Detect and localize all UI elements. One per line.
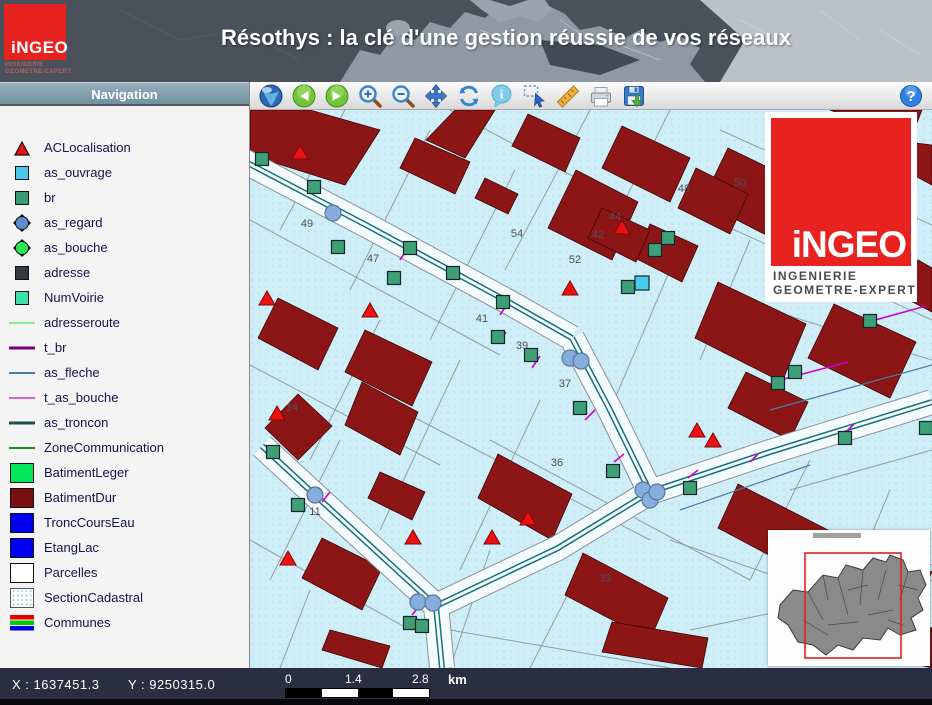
forward-arrow-icon: [324, 83, 350, 109]
parcel-number-label: 52: [569, 254, 581, 266]
parcel-number-label: 54: [511, 228, 523, 240]
layer-swatch-line-icon: [0, 363, 44, 383]
layer-item-as_troncon[interactable]: as_troncon: [0, 410, 249, 435]
layer-item-ACLocalisation[interactable]: ACLocalisation: [0, 135, 249, 160]
scale-segment: [358, 689, 394, 697]
parcel-number-label: 37: [559, 378, 571, 390]
layer-item-BatimentLeger[interactable]: BatimentLeger: [0, 460, 249, 485]
layer-item-t_br[interactable]: t_br: [0, 335, 249, 360]
layer-item-as_regard[interactable]: as_regard: [0, 210, 249, 235]
br-point-icon: [789, 366, 802, 379]
layer-label: TroncCoursEau: [44, 515, 135, 530]
back-arrow-icon: [291, 83, 317, 109]
as-regard-point-icon: [573, 353, 589, 369]
br-point-icon: [416, 620, 429, 633]
br-point-icon: [622, 281, 635, 294]
layer-swatch-rect-icon: [0, 513, 44, 533]
layer-label: t_br: [44, 340, 66, 355]
help-button[interactable]: ?: [898, 83, 924, 109]
select-rectangle-icon: [522, 83, 548, 109]
layer-item-adresse[interactable]: adresse: [0, 260, 249, 285]
scale-segment: [286, 689, 322, 697]
scale-bar: [285, 688, 430, 698]
layer-swatch-line-icon: [0, 313, 44, 333]
as-regard-point-icon: [649, 484, 665, 500]
zoom-in-button[interactable]: [357, 83, 383, 109]
layer-swatch-dotted-rect-icon: [0, 588, 44, 608]
forward-button[interactable]: [324, 83, 350, 109]
zoom-out-icon: [390, 83, 416, 109]
layer-item-EtangLac[interactable]: EtangLac: [0, 535, 249, 560]
br-point-icon: [404, 242, 417, 255]
br-point-icon: [684, 482, 697, 495]
navigation-panel: Navigation ACLocalisationas_ouvragebras_…: [0, 82, 250, 668]
layer-item-as_fleche[interactable]: as_fleche: [0, 360, 249, 385]
parcel-number-label: 50: [734, 177, 746, 189]
layer-item-ZoneCommunication[interactable]: ZoneCommunication: [0, 435, 249, 460]
pan-button[interactable]: [423, 83, 449, 109]
zoom-out-button[interactable]: [390, 83, 416, 109]
layer-label: adresse: [44, 265, 90, 280]
layer-label: BatimentDur: [44, 490, 116, 505]
select-button[interactable]: [522, 83, 548, 109]
br-point-icon: [497, 296, 510, 309]
ingeo-logo-line1: INGENIERIE: [5, 62, 115, 69]
save-floppy-icon: [621, 83, 647, 109]
br-point-icon: [864, 315, 877, 328]
layer-swatch-rect-icon: [0, 538, 44, 558]
layer-label: br: [44, 190, 56, 205]
layer-item-adresseroute[interactable]: adresseroute: [0, 310, 249, 335]
scale-tick-0: 0: [285, 672, 292, 686]
back-button[interactable]: [291, 83, 317, 109]
layer-swatch-square-icon: [0, 188, 44, 208]
br-point-icon: [839, 432, 852, 445]
br-point-icon: [772, 377, 785, 390]
ingeo-watermark-card: iNGEO INGENIERIE GEOMETRE-EXPERT: [765, 112, 917, 302]
layer-label: EtangLac: [44, 540, 99, 555]
br-point-icon: [256, 153, 269, 166]
layer-swatch-square-icon: [0, 163, 44, 183]
layer-legend: ACLocalisationas_ouvragebras_regardas_bo…: [0, 106, 249, 635]
layer-item-SectionCadastral[interactable]: SectionCadastral: [0, 585, 249, 610]
map-viewport: 494741545244424850393736331411 iNGEO ING…: [250, 110, 932, 668]
printer-icon: [588, 83, 614, 109]
ingeo-watermark-line1: INGENIERIE: [773, 269, 857, 283]
ingeo-logo: iNGEO: [4, 4, 66, 60]
x-coordinate-readout: X : 1637451.3: [12, 677, 99, 692]
layer-label: ACLocalisation: [44, 140, 131, 155]
parcel-number-label: 44: [609, 211, 621, 223]
br-point-icon: [332, 241, 345, 254]
br-point-icon: [607, 465, 620, 478]
layer-label: as_troncon: [44, 415, 108, 430]
overview-map[interactable]: [768, 530, 930, 666]
measure-button[interactable]: [555, 83, 581, 109]
layer-swatch-stripes-icon: [0, 613, 44, 633]
layer-item-Communes[interactable]: Communes: [0, 610, 249, 635]
layer-swatch-square-icon: [0, 263, 44, 283]
br-point-icon: [308, 181, 321, 194]
svg-text:?: ?: [906, 88, 915, 105]
as-ouvrage-point-icon: [635, 276, 649, 290]
layer-swatch-line-icon: [0, 338, 44, 358]
parcel-number-label: 49: [301, 218, 313, 230]
scale-tick-1: 1.4: [345, 672, 362, 686]
layer-label: as_regard: [44, 215, 103, 230]
layer-label: as_bouche: [44, 240, 108, 255]
layer-item-t_as_bouche[interactable]: t_as_bouche: [0, 385, 249, 410]
as-regard-point-icon: [410, 594, 426, 610]
layer-swatch-line-icon: [0, 413, 44, 433]
parcel-number-label: 11: [309, 506, 320, 518]
info-button[interactable]: i: [489, 83, 515, 109]
layer-item-br[interactable]: br: [0, 185, 249, 210]
layer-label: Communes: [44, 615, 110, 630]
refresh-button[interactable]: [456, 83, 482, 109]
as-regard-point-icon: [425, 595, 441, 611]
y-coordinate-readout: Y : 9250315.0: [128, 677, 215, 692]
layer-label: as_fleche: [44, 365, 100, 380]
scale-unit-label: km: [448, 672, 467, 687]
svg-text:i: i: [500, 86, 504, 101]
parcel-number-label: 14: [286, 402, 298, 414]
as-regard-point-icon: [325, 205, 341, 221]
br-point-icon: [649, 244, 662, 257]
layer-swatch-line-icon: [0, 438, 44, 458]
layer-label: NumVoirie: [44, 290, 104, 305]
as-regard-point-icon: [307, 487, 323, 503]
ingeo-logo-line2: GEOMETRE-EXPERT: [5, 69, 115, 76]
app-header: iNGEO INGENIERIE GEOMETRE-EXPERT Résothy…: [0, 0, 932, 82]
save-button[interactable]: [621, 83, 647, 109]
parcel-number-label: 42: [592, 229, 604, 241]
layer-label: BatimentLeger: [44, 465, 129, 480]
layer-swatch-triangle-icon: [0, 138, 44, 158]
ingeo-watermark-wordmark: iNGEO: [792, 224, 906, 266]
br-point-icon: [662, 232, 675, 245]
zoom-in-icon: [357, 83, 383, 109]
ingeo-wordmark: iNGEO: [11, 38, 68, 58]
br-point-icon: [574, 402, 587, 415]
layer-label: SectionCadastral: [44, 590, 143, 605]
ingeo-watermark-logo: iNGEO: [771, 118, 911, 266]
br-point-icon: [492, 331, 505, 344]
scale-bar-group: 0 1.4 2.8 km: [285, 672, 495, 698]
map-toolbar: i ?: [250, 82, 932, 110]
parcel-number-label: 36: [551, 457, 563, 469]
ingeo-watermark-line2: GEOMETRE-EXPERT: [773, 283, 916, 297]
status-bar: X : 1637451.3 Y : 9250315.0 0 1.4 2.8 km: [0, 668, 932, 705]
br-point-icon: [267, 446, 280, 459]
info-bubble-icon: i: [489, 83, 515, 109]
layer-label: Parcelles: [44, 565, 97, 580]
scale-segment: [322, 689, 358, 697]
refresh-icon: [456, 83, 482, 109]
scale-segment: [393, 689, 429, 697]
scale-tick-2: 2.8: [412, 672, 429, 686]
layer-item-Parcelles[interactable]: Parcelles: [0, 560, 249, 585]
layer-item-as_ouvrage[interactable]: as_ouvrage: [0, 160, 249, 185]
layer-label: t_as_bouche: [44, 390, 118, 405]
layer-label: as_ouvrage: [44, 165, 112, 180]
layer-item-BatimentDur[interactable]: BatimentDur: [0, 485, 249, 510]
layer-swatch-rect-icon: [0, 563, 44, 583]
help-icon: ?: [898, 83, 924, 109]
layer-item-TroncCoursEau[interactable]: TroncCoursEau: [0, 510, 249, 535]
layer-swatch-spiked-circle-icon: [0, 238, 44, 258]
navigation-panel-title: Navigation: [0, 82, 249, 106]
parcel-number-label: 48: [678, 183, 690, 195]
parcel-number-label: 33: [599, 573, 611, 585]
pan-arrows-icon: [423, 83, 449, 109]
parcel-number-label: 47: [367, 253, 379, 265]
br-point-icon: [388, 272, 401, 285]
layer-swatch-rect-icon: [0, 463, 44, 483]
parcel-number-label: 39: [516, 340, 528, 352]
layer-swatch-line-icon: [0, 388, 44, 408]
layer-label: ZoneCommunication: [44, 440, 164, 455]
layer-label: adresseroute: [44, 315, 120, 330]
ingeo-logo-subtitle: INGENIERIE GEOMETRE-EXPERT: [5, 62, 115, 76]
resothys-app: iNGEO INGENIERIE GEOMETRE-EXPERT Résothy…: [0, 0, 932, 705]
br-point-icon: [447, 267, 460, 280]
globe-button[interactable]: [258, 83, 284, 109]
ruler-icon: [555, 83, 581, 109]
page-title: Résothys : la clé d'une gestion réussie …: [90, 25, 922, 51]
layer-swatch-square-icon: [0, 288, 44, 308]
br-point-icon: [292, 499, 305, 512]
layer-item-NumVoirie[interactable]: NumVoirie: [0, 285, 249, 310]
overview-scroll-thumb[interactable]: [813, 533, 861, 538]
br-point-icon: [404, 617, 417, 630]
layer-swatch-spiked-circle-icon: [0, 213, 44, 233]
layer-item-as_bouche[interactable]: as_bouche: [0, 235, 249, 260]
layer-swatch-rect-icon: [0, 488, 44, 508]
print-button[interactable]: [588, 83, 614, 109]
br-point-icon: [920, 422, 932, 435]
parcel-number-label: 41: [476, 313, 488, 325]
globe-icon: [258, 83, 284, 109]
